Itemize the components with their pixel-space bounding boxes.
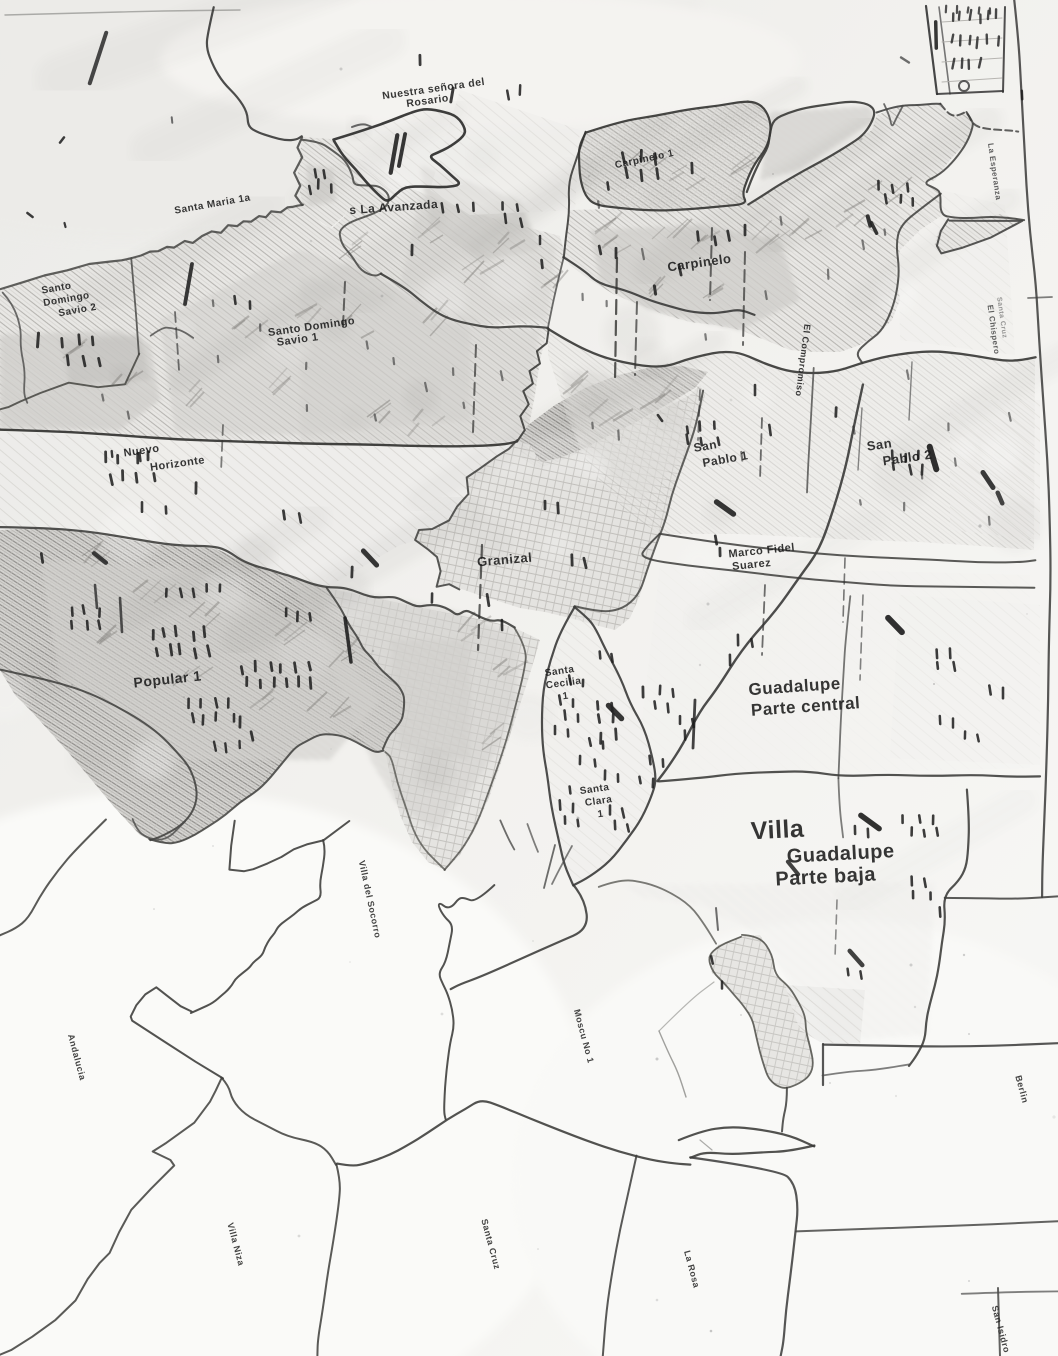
svg-text:Villa: Villa [750, 815, 805, 846]
